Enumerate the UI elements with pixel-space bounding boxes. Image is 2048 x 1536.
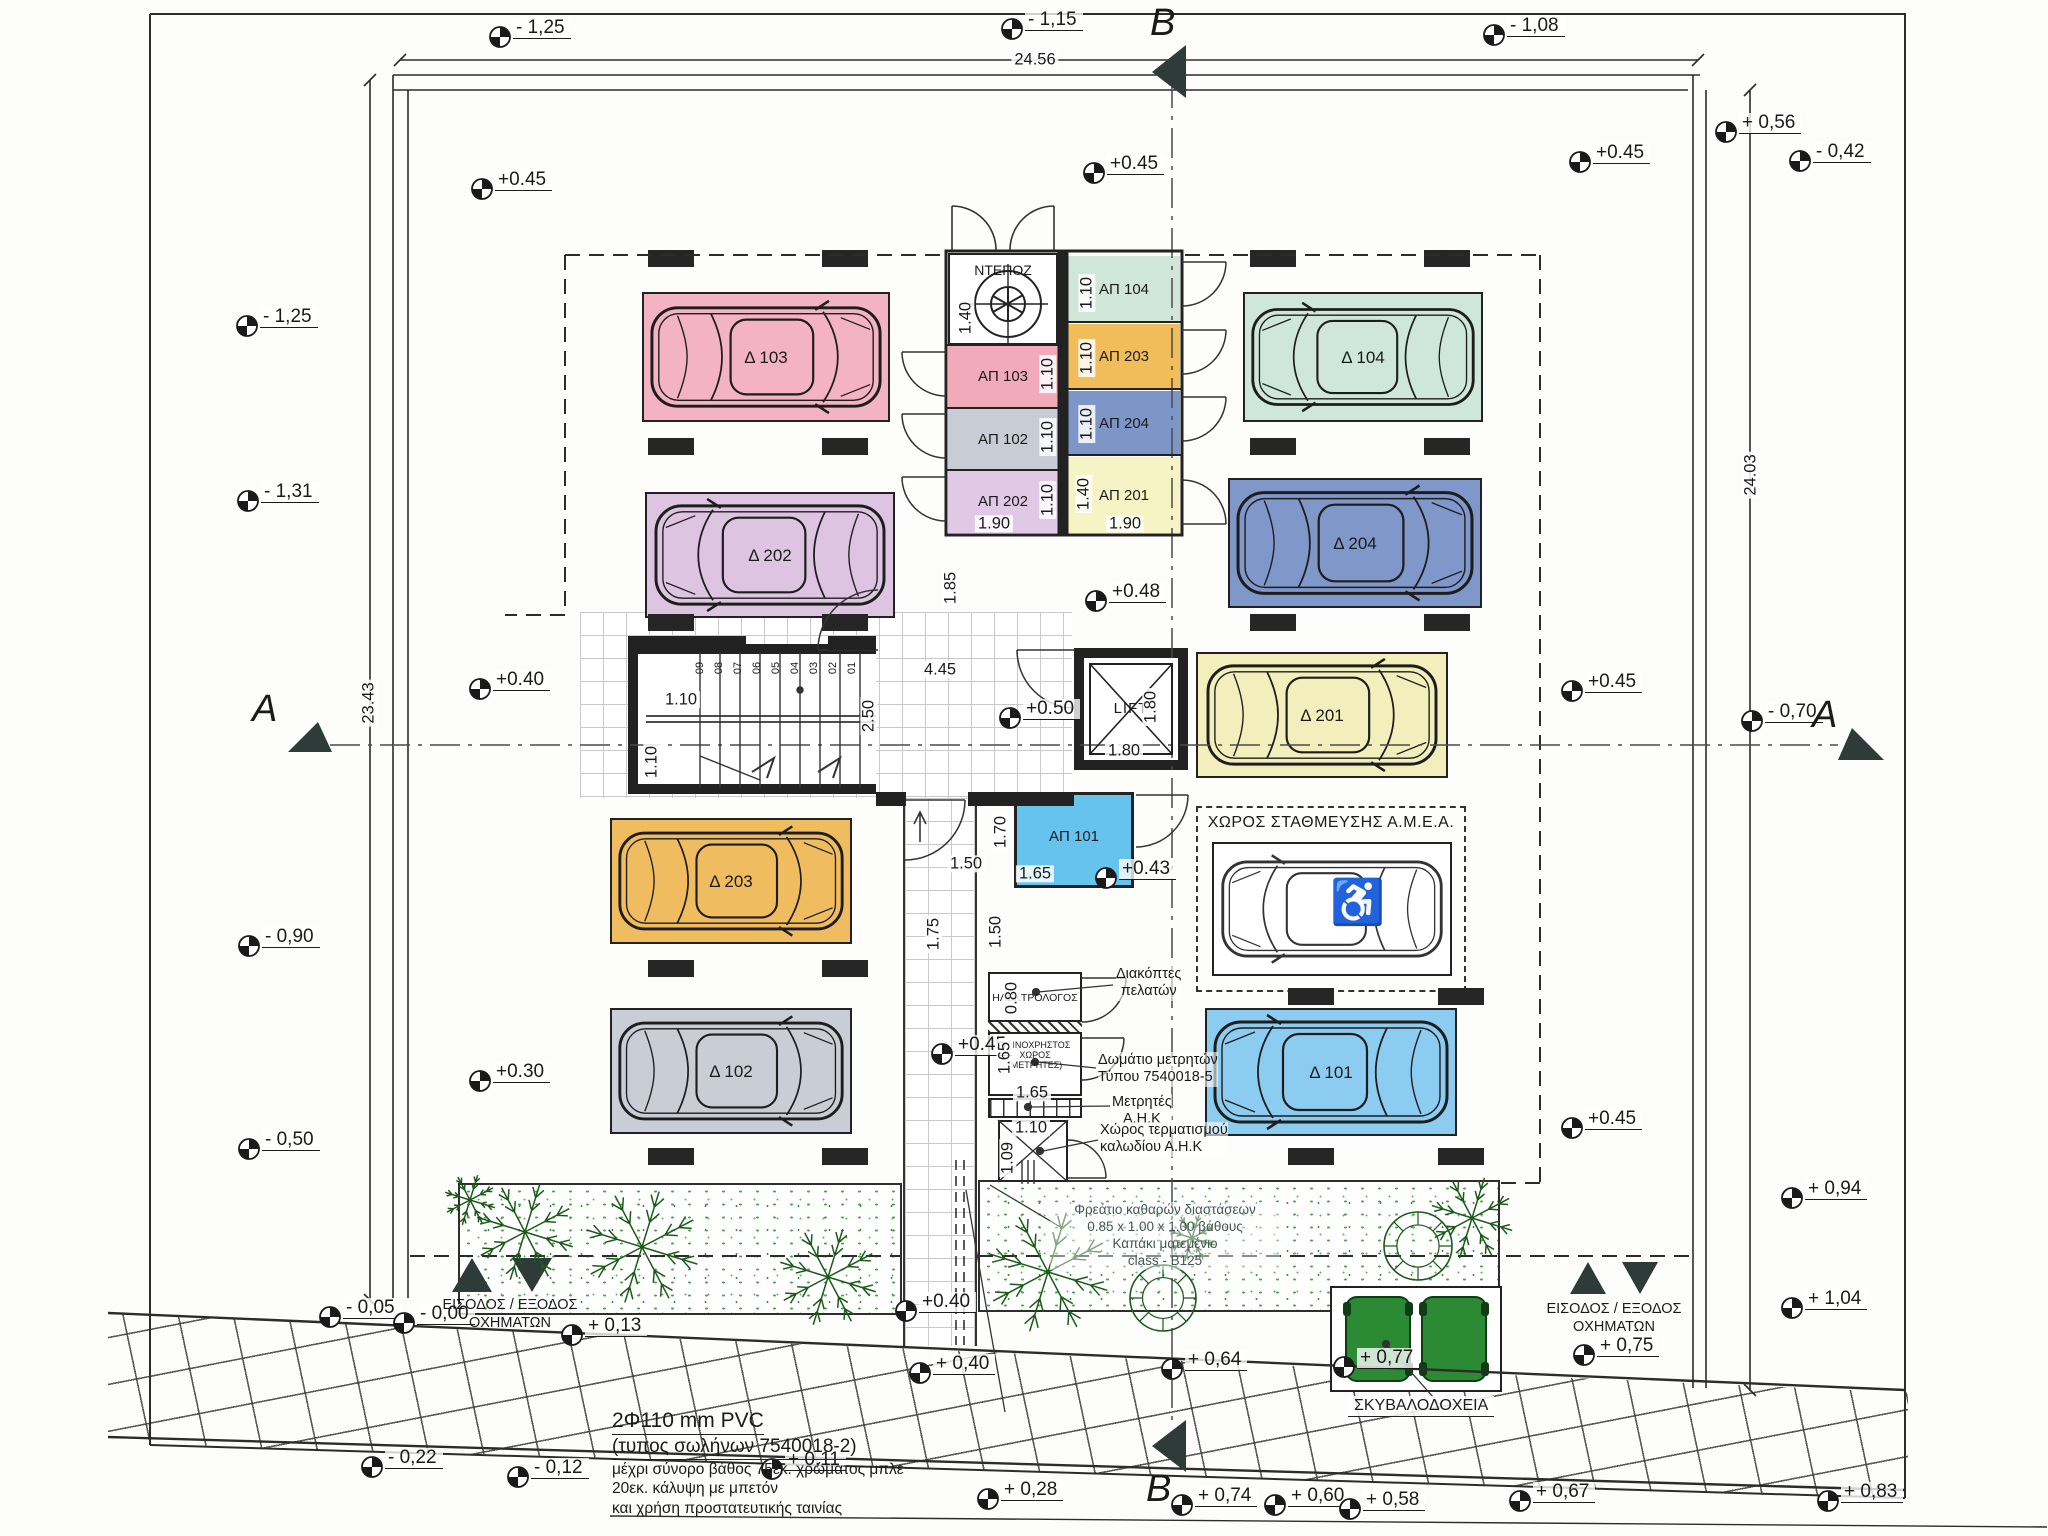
storage-room: ΑΠ 202: [948, 470, 1058, 533]
parking-stall: Δ 202: [645, 492, 895, 618]
column: [1438, 1148, 1484, 1165]
column: [822, 614, 868, 631]
storage-room: ΑΠ 204: [1068, 391, 1180, 455]
column: [648, 614, 694, 631]
parking-stall: Δ 104: [1243, 292, 1483, 422]
floor-plan: Δ 103 Δ 104 Δ 202: [0, 0, 2048, 1536]
electrician-room: [988, 972, 1082, 1022]
parking-stall: Δ 201: [1196, 652, 1448, 778]
stall-label: Δ 101: [1207, 1063, 1455, 1083]
column: [1438, 988, 1484, 1005]
column: [1424, 250, 1470, 267]
stall-label: Δ 204: [1230, 534, 1480, 554]
storage-room: ΑΠ 102: [948, 408, 1058, 470]
column: [822, 1148, 868, 1165]
column: [1250, 614, 1296, 631]
column: [648, 1148, 694, 1165]
garbage-bin: [1421, 1296, 1487, 1382]
meters-room: [988, 1032, 1082, 1096]
parking-stall: Δ 204: [1228, 478, 1482, 608]
parking-stall: Δ 101: [1205, 1008, 1457, 1136]
stall-label: Δ 201: [1198, 706, 1446, 726]
column: [648, 960, 694, 977]
storage-room: ΑΠ 103: [948, 345, 1058, 408]
bins-box: [1330, 1286, 1502, 1392]
cable-room: [998, 1120, 1068, 1182]
column: [1250, 250, 1296, 267]
lift-box: [1074, 648, 1188, 770]
wall-hatch: [988, 1022, 1082, 1032]
column: [1424, 438, 1470, 455]
column: [648, 438, 694, 455]
column: [822, 438, 868, 455]
storage-ap101: [1014, 792, 1134, 888]
stall-label: Δ 104: [1245, 348, 1481, 368]
stall-label: Δ 103: [644, 348, 888, 368]
stall-label: Δ 102: [612, 1062, 850, 1082]
deposit-room: [948, 253, 1058, 345]
amea-stall: [1212, 842, 1452, 976]
column: [1288, 1148, 1334, 1165]
storage-room: ΑΠ 203: [1068, 324, 1180, 389]
column: [1424, 614, 1470, 631]
column: [648, 250, 694, 267]
garbage-bin: [1345, 1296, 1411, 1382]
stall-label: Δ 203: [612, 872, 850, 892]
meters-strip: [988, 1098, 1082, 1118]
column: [822, 250, 868, 267]
stair-box: [628, 644, 876, 794]
parking-stall: Δ 203: [610, 818, 852, 944]
column: [1250, 438, 1296, 455]
column: [1288, 988, 1334, 1005]
storage-room: ΑΠ 104: [1068, 256, 1180, 322]
parking-stall: Δ 103: [642, 292, 890, 422]
storage-room: ΑΠ 201: [1068, 457, 1180, 533]
parking-stall: Δ 102: [610, 1008, 852, 1134]
column: [822, 960, 868, 977]
stall-label: Δ 202: [647, 546, 893, 566]
